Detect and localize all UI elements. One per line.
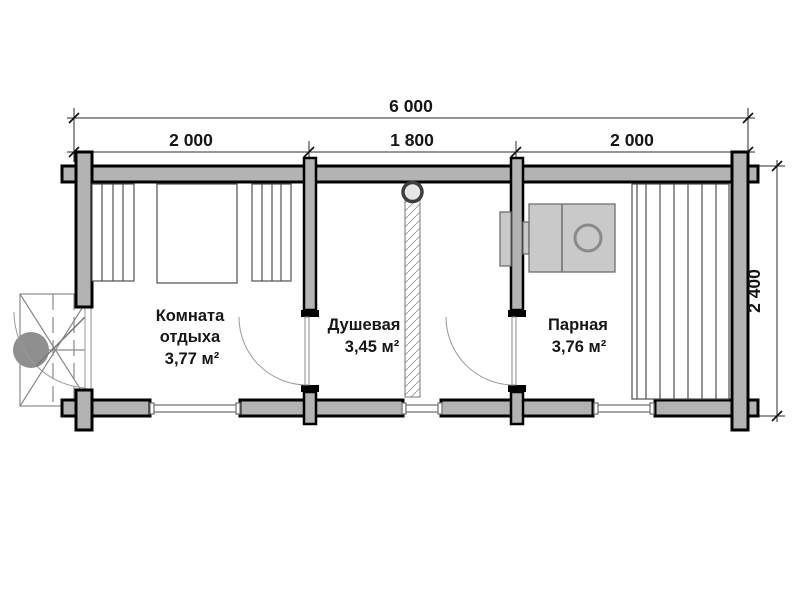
shower-partition bbox=[403, 183, 422, 398]
door-shower-to-steam bbox=[446, 317, 516, 385]
dimension-segment-2: 1 800 bbox=[390, 130, 434, 150]
dimension-segment-3: 2 000 bbox=[610, 130, 654, 150]
room-label-rest: Комната отдыха 3,77 м² bbox=[156, 307, 225, 368]
dimension-overall: 6 000 bbox=[389, 96, 433, 116]
floor-plan-page: 6 000 2 000 1 800 2 000 2 400 Комната от… bbox=[0, 0, 800, 600]
room-label-steam: Парная 3,76 м² bbox=[548, 316, 608, 356]
room-area: 3,45 м² bbox=[345, 338, 400, 356]
room-label-shower: Душевая 3,45 м² bbox=[328, 316, 401, 356]
dimension-depth: 2 400 bbox=[744, 269, 764, 313]
steam-room-bench bbox=[632, 184, 729, 399]
door-rest-to-shower bbox=[239, 317, 309, 385]
stove-burner bbox=[575, 225, 601, 251]
room-area: 3,76 м² bbox=[552, 338, 607, 356]
dimension-segment-1: 2 000 bbox=[169, 130, 213, 150]
room-name-line: Душевая bbox=[328, 316, 401, 334]
room-name-line: Парная bbox=[548, 316, 608, 334]
room-name-line: Комната bbox=[156, 307, 225, 325]
rest-room-furniture bbox=[92, 184, 291, 283]
floor-plan-drawing: 6 000 2 000 1 800 2 000 2 400 Комната от… bbox=[0, 0, 800, 600]
room-area: 3,77 м² bbox=[165, 350, 220, 368]
shower-head bbox=[403, 183, 422, 202]
room-name-line: отдыха bbox=[160, 328, 221, 346]
